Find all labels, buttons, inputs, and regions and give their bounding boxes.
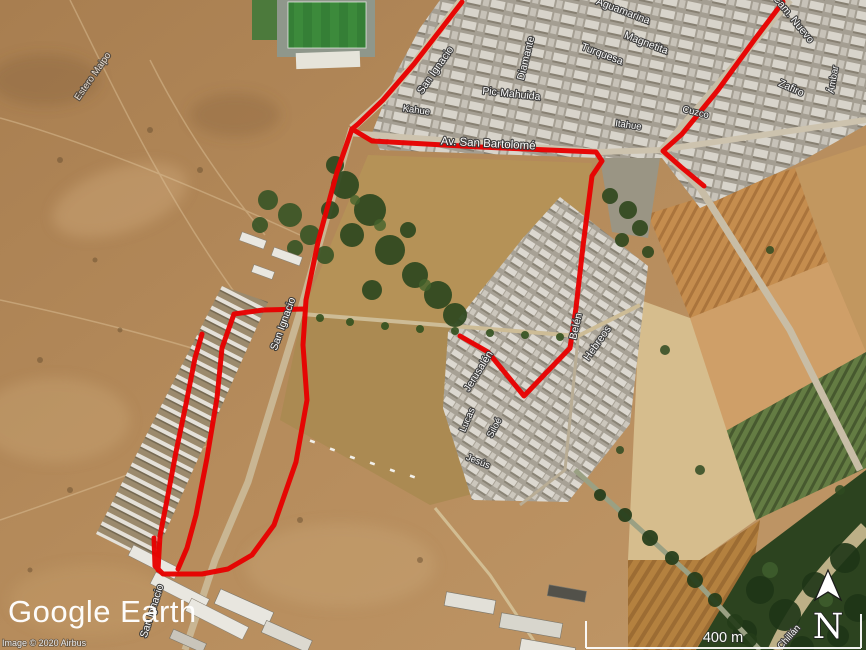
clubhouse-roof [296, 51, 361, 69]
satellite-map-canvas[interactable]: Estero Maipo San Ignacio Aguamarina Turq… [0, 0, 866, 650]
copyright-text: Image © 2020 Airbus [2, 638, 87, 648]
google-earth-viewport[interactable]: Estero Maipo San Ignacio Aguamarina Turq… [0, 0, 866, 650]
google-earth-logo: Google Earth [8, 594, 197, 629]
scale-label: 400 m [703, 630, 743, 646]
north-letter: N [813, 607, 844, 647]
